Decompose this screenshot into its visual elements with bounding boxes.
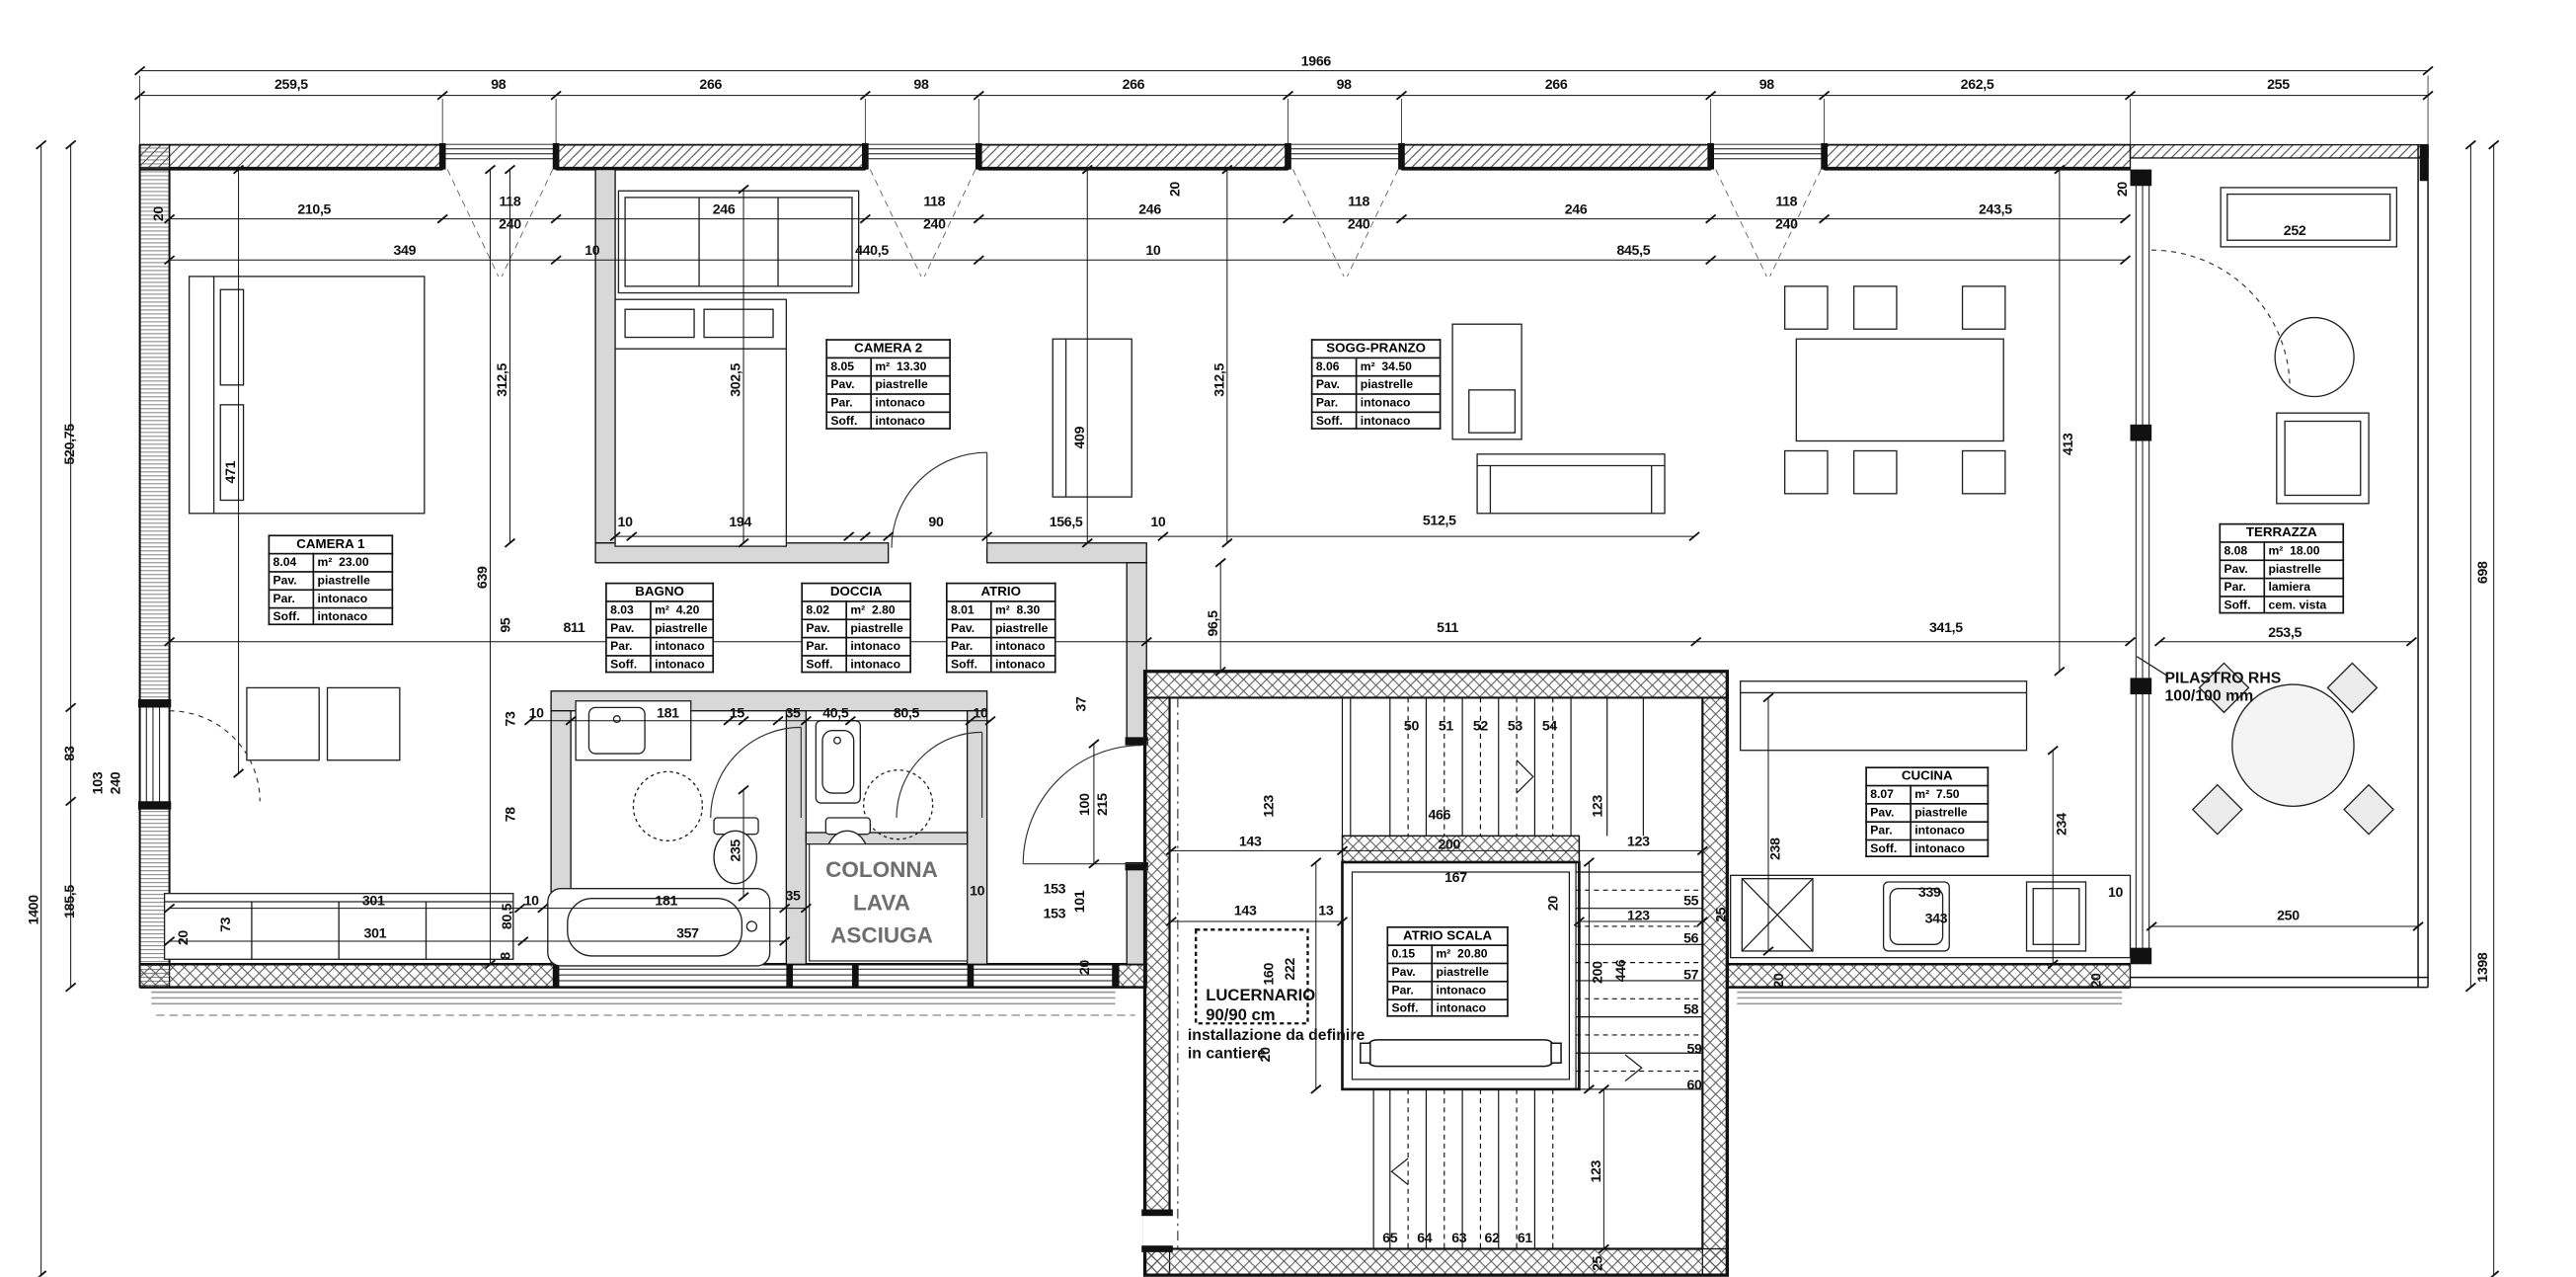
floor-plan: 1966259,598266982669826698262,525520210,…	[0, 0, 2576, 1277]
room-code: 8.03	[606, 601, 651, 619]
dim-label: 56	[1683, 929, 1698, 946]
dining-set	[1785, 286, 2005, 494]
dim-label: 10	[585, 242, 599, 259]
dim-label: 471	[222, 461, 239, 484]
room-area: m² 7.50	[1911, 786, 1988, 804]
room-name: BAGNO	[606, 584, 713, 601]
dim-label: 246	[1138, 200, 1161, 217]
note-line: in cantiere	[1188, 1045, 1365, 1063]
finish-value: intonaco	[313, 607, 392, 625]
finish-label: Par.	[1866, 822, 1911, 839]
dim-label: 1400	[25, 895, 41, 924]
dim-label: 54	[1542, 717, 1557, 734]
room-table-bagno: BAGNO8.03m² 4.20Pav.piastrellePar.intona…	[605, 583, 714, 674]
finish-label: Par.	[1387, 981, 1432, 998]
room-area: m² 20.80	[1432, 945, 1508, 963]
dim-label: 118	[1348, 193, 1369, 209]
room-name: TERRAZZA	[2220, 524, 2343, 542]
room-table-terrazza: TERRAZZA8.08m² 18.00Pav.piastrellePar.la…	[2219, 523, 2344, 614]
finish-value: piastrelle	[871, 375, 950, 393]
dim-label: 58	[1683, 1000, 1698, 1017]
finish-label: Soff.	[1866, 839, 1911, 857]
dim-label: 301	[364, 924, 387, 941]
finish-label: Soff.	[826, 412, 871, 430]
dim-label: 235	[727, 839, 743, 862]
finish-label: Pav.	[1866, 804, 1911, 822]
room-table-doccia: DOCCIA8.02m² 2.80Pav.piastrellePar.inton…	[801, 583, 911, 674]
dim-label: 185,5	[61, 885, 78, 918]
dim-label: 25	[1589, 1256, 1605, 1271]
finish-label: Par.	[947, 637, 991, 655]
finish-value: intonaco	[313, 590, 392, 607]
finish-label: Pav.	[2220, 560, 2264, 578]
dim-label: 698	[2474, 561, 2491, 584]
finish-value: piastrelle	[1357, 375, 1441, 393]
dim-label: 240	[1348, 215, 1370, 232]
dim-label: 259,5	[274, 76, 308, 93]
dim-label: 181	[657, 704, 679, 721]
dim-label: 255	[2267, 76, 2290, 93]
floor-plan-drawing	[0, 0, 2576, 1277]
dim-label: 62	[1485, 1230, 1500, 1246]
finish-label: Soff.	[269, 607, 313, 625]
dim-label: 10	[970, 882, 984, 899]
dim-label: 80,5	[894, 704, 919, 721]
note-colonna-lava-asciuga: COLONNALAVAASCIUGA	[825, 854, 938, 953]
dim-label: 52	[1473, 717, 1488, 734]
note-line: LAVA	[825, 887, 938, 919]
dim-label: 811	[564, 618, 585, 635]
finish-value: intonaco	[846, 655, 910, 673]
kitchen-island	[1741, 681, 2027, 751]
finish-label: Par.	[2220, 578, 2264, 596]
finish-value: intonaco	[1911, 822, 1988, 839]
dim-label: 78	[502, 807, 518, 822]
room-table-cucina: CUCINA8.07m² 7.50Pav.piastrellePar.inton…	[1865, 766, 1989, 857]
pouf	[247, 687, 319, 759]
room-area: m² 23.00	[313, 554, 392, 572]
dim-label: 302,5	[727, 363, 743, 397]
finish-label: Pav.	[1387, 963, 1432, 981]
finish-label: Par.	[269, 590, 313, 607]
dim-label: 63	[1451, 1230, 1466, 1246]
finish-label: Soff.	[2220, 596, 2264, 613]
room-name: CAMERA 2	[826, 340, 950, 358]
room-table-atrio: ATRIO8.01m² 8.30Pav.piastrellePar.intona…	[946, 583, 1056, 674]
note-line: installazione da definire	[1188, 1027, 1365, 1045]
room-table-camera-1: CAMERA 18.04m² 23.00Pav.piastrellePar.in…	[269, 534, 394, 625]
dim-label: 160	[1260, 963, 1277, 986]
dim-label: 210,5	[297, 200, 331, 217]
finish-label: Soff.	[1312, 412, 1357, 430]
dim-label: 20	[150, 206, 167, 221]
finish-value: intonaco	[991, 655, 1055, 673]
dim-label: 123	[1260, 795, 1277, 818]
finish-label: Soff.	[947, 655, 991, 673]
note-line: PILASTRO RHS	[2164, 670, 2281, 687]
dim-label: 123	[1588, 1160, 1604, 1183]
dim-label: 266	[1545, 76, 1568, 93]
finish-value: piastrelle	[1432, 963, 1508, 981]
dim-label: 520,75	[61, 424, 78, 464]
finish-value: intonaco	[1357, 412, 1441, 430]
dim-label: 10	[1150, 514, 1165, 530]
terrace-chair	[2344, 785, 2393, 835]
wardrobe-camera-2	[618, 191, 858, 292]
finish-label: Par.	[1312, 393, 1357, 411]
dim-label: 240	[107, 772, 123, 795]
room-code: 8.04	[269, 554, 313, 572]
dim-label: 10	[973, 704, 987, 721]
dim-label: 246	[713, 200, 736, 217]
dim-label: 15	[730, 704, 744, 721]
dim-label: 35	[785, 704, 800, 721]
dim-label: 10	[524, 892, 539, 909]
note-line: COLONNA	[825, 854, 938, 887]
dim-label: 60	[1686, 1077, 1701, 1093]
dim-label: 65	[1382, 1230, 1397, 1246]
room-area: m² 13.30	[871, 358, 950, 375]
room-code: 0.15	[1387, 945, 1432, 963]
dim-label: 215	[1094, 793, 1111, 816]
room-table-sogg-pranzo: SOGG-PRANZO8.06m² 34.50Pav.piastrellePar…	[1311, 339, 1442, 430]
room-code: 8.07	[1866, 786, 1911, 804]
dim-label: 341,5	[1929, 618, 1963, 635]
door-swings	[170, 170, 2291, 864]
dim-label: 343	[1925, 910, 1948, 926]
dim-label: 90	[928, 514, 943, 530]
dim-label: 409	[1071, 427, 1088, 449]
room-area: m² 8.30	[991, 601, 1055, 619]
room-area: m² 2.80	[846, 601, 910, 619]
dim-label: 98	[491, 76, 506, 93]
dim-label: 35	[785, 887, 800, 904]
finish-value: intonaco	[871, 393, 950, 411]
finish-label: Par.	[802, 637, 846, 655]
finish-value: intonaco	[1911, 839, 1988, 857]
dim-label: 639	[474, 566, 491, 589]
dim-label: 13	[1318, 902, 1333, 918]
finish-value: intonaco	[1432, 998, 1508, 1016]
room-table-camera-2: CAMERA 28.05m² 13.30Pav.piastrellePar.in…	[825, 339, 951, 430]
dim-label: 118	[500, 193, 521, 209]
dim-label: 413	[2060, 434, 2076, 456]
furniture	[165, 188, 2397, 966]
dim-label: 252	[2284, 222, 2306, 239]
finish-value: piastrelle	[1911, 804, 1988, 822]
dim-label: 511	[1437, 618, 1458, 635]
dim-label: 98	[1759, 76, 1774, 93]
note-lucernario-note: installazione da definirein cantiere	[1188, 1027, 1365, 1064]
note-line: 90/90 cm	[1206, 1007, 1315, 1027]
dim-label: 153	[1044, 880, 1066, 897]
dim-label: 20	[1544, 896, 1561, 911]
finish-value: lamiera	[2264, 578, 2343, 596]
dim-label: 40,5	[822, 704, 848, 721]
dim-label: 339	[1918, 884, 1941, 901]
dim-label: 20	[2114, 182, 2131, 197]
note-lucernario: LUCERNARIO90/90 cm	[1206, 988, 1315, 1027]
room-name: ATRIO	[947, 584, 1055, 601]
dim-label: 1966	[1301, 52, 1331, 69]
dim-label: 118	[1775, 193, 1797, 209]
room-code: 8.08	[2220, 542, 2264, 560]
room-area: m² 18.00	[2264, 542, 2343, 560]
dim-label: 10	[529, 704, 544, 721]
dim-label: 266	[1123, 76, 1145, 93]
dim-label: 80,5	[499, 904, 515, 929]
finish-value: piastrelle	[313, 572, 392, 590]
dim-label: 143	[1234, 902, 1257, 918]
dim-label: 312,5	[494, 363, 510, 397]
dim-label: 240	[499, 215, 521, 232]
dim-label: 357	[676, 924, 699, 941]
dim-label: 156,5	[1050, 514, 1083, 530]
dim-label: 98	[913, 76, 928, 93]
dim-label: 55	[1683, 892, 1698, 909]
dim-label: 512,5	[1423, 512, 1456, 528]
finish-label: Pav.	[826, 375, 871, 393]
note-pilastro-rhs: PILASTRO RHS100/100 mm	[2164, 670, 2281, 706]
finish-label: Pav.	[1312, 375, 1357, 393]
coffee-table	[1469, 390, 1516, 433]
room-name: SOGG-PRANZO	[1312, 340, 1441, 358]
dim-label: 100	[1076, 793, 1093, 816]
dim-label: 312,5	[1210, 363, 1227, 397]
room-table-atrio-scala: ATRIO SCALA0.15m² 20.80Pav.piastrellePar…	[1386, 926, 1508, 1017]
finish-value: intonaco	[871, 412, 950, 430]
dim-label: 101	[1071, 891, 1088, 914]
washbasin-doccia	[816, 721, 860, 803]
room-code: 8.06	[1312, 358, 1357, 375]
dim-label: 153	[1044, 905, 1066, 921]
dim-label: 61	[1518, 1230, 1532, 1246]
finish-label: Soff.	[606, 655, 651, 673]
finish-value: intonaco	[651, 655, 713, 673]
clearance-circle	[864, 770, 933, 839]
finish-value: intonaco	[1357, 393, 1441, 411]
dim-label: 262,5	[1961, 76, 1994, 93]
dim-label: 95	[497, 618, 513, 633]
dim-label: 1398	[2474, 953, 2491, 983]
dim-label: 181	[655, 892, 677, 909]
room-name: CAMERA 1	[269, 535, 392, 553]
dim-label: 59	[1686, 1040, 1701, 1057]
room-code: 8.02	[802, 601, 846, 619]
dim-label: 123	[1627, 833, 1650, 849]
finish-value: intonaco	[991, 637, 1055, 655]
finish-value: piastrelle	[846, 619, 910, 637]
dim-label: 103	[89, 772, 106, 795]
finish-label: Pav.	[947, 619, 991, 637]
dim-label: 238	[1766, 838, 1783, 860]
dim-label: 25	[1712, 908, 1729, 922]
note-line: LUCERNARIO	[1206, 988, 1315, 1007]
dim-label: 37	[1072, 697, 1089, 712]
dim-label: 10	[618, 514, 633, 530]
finish-value: intonaco	[651, 637, 713, 655]
finish-label: Pav.	[269, 572, 313, 590]
dim-label: 246	[1565, 200, 1588, 217]
dim-label: 73	[217, 918, 234, 932]
sill-bands	[151, 993, 2122, 1015]
dim-label: 64	[1417, 1230, 1432, 1246]
room-area: m² 34.50	[1357, 358, 1441, 375]
terrace-seat	[2277, 413, 2369, 504]
note-line: 100/100 mm	[2164, 687, 2281, 705]
bed-camera-2	[615, 299, 786, 546]
finish-value: intonaco	[1432, 981, 1508, 998]
terrace-small-table	[2275, 318, 2354, 397]
terrace-chair	[2193, 785, 2242, 835]
finish-label: Par.	[826, 393, 871, 411]
dim-label: 20	[1076, 960, 1093, 975]
dim-label: 10	[1145, 242, 1160, 259]
finish-label: Par.	[606, 637, 651, 655]
sofa	[1477, 454, 1665, 514]
dim-label: 50	[1404, 717, 1419, 734]
dim-label: 96,5	[1205, 610, 1221, 636]
dim-label: 51	[1439, 717, 1453, 734]
dim-label: 250	[2277, 907, 2300, 923]
dim-label: 194	[729, 514, 751, 530]
room-name: CUCINA	[1866, 767, 1988, 785]
dim-label: 240	[1775, 215, 1798, 232]
dim-label: 10	[2108, 884, 2123, 901]
dim-label: 20	[175, 930, 192, 945]
finish-value: cem. vista	[2264, 596, 2343, 613]
room-code: 8.01	[947, 601, 991, 619]
clearance-circle	[633, 771, 702, 840]
dim-label: 20	[2087, 973, 2104, 988]
room-area: m² 4.20	[651, 601, 713, 619]
dim-label: 167	[1444, 869, 1467, 886]
dim-label: 98	[1337, 76, 1352, 93]
dim-label: 243,5	[1979, 200, 2012, 217]
dim-label: 266	[699, 76, 722, 93]
dim-label: 222	[1282, 958, 1298, 981]
dim-label: 73	[502, 712, 518, 727]
dim-label: 301	[362, 892, 385, 909]
finish-value: piastrelle	[651, 619, 713, 637]
finish-label: Pav.	[606, 619, 651, 637]
dim-label: 440,5	[855, 242, 889, 259]
terrace-planter	[2221, 188, 2396, 247]
pouf	[328, 687, 400, 759]
dim-label: 118	[923, 193, 945, 209]
dim-label: 845,5	[1616, 242, 1650, 259]
dim-label: 20	[1166, 182, 1183, 197]
dim-label: 200	[1438, 836, 1460, 852]
finish-value: piastrelle	[991, 619, 1055, 637]
room-name: DOCCIA	[802, 584, 910, 601]
dim-label: 8	[497, 952, 513, 960]
finish-value: intonaco	[846, 637, 910, 655]
dim-label: 83	[61, 746, 78, 760]
dim-label: 466	[1428, 806, 1450, 823]
dim-label: 57	[1683, 966, 1698, 983]
finish-label: Soff.	[802, 655, 846, 673]
finish-label: Pav.	[802, 619, 846, 637]
dim-label: 234	[2053, 813, 2069, 836]
dim-label: 53	[1508, 717, 1522, 734]
dim-label: 123	[1589, 795, 1605, 818]
room-code: 8.05	[826, 358, 871, 375]
note-line: ASCIUGA	[825, 919, 938, 952]
desk-camera-2	[1053, 339, 1132, 497]
finish-value: piastrelle	[2264, 560, 2343, 578]
finish-label: Soff.	[1387, 998, 1432, 1016]
dim-label: 200	[1589, 961, 1605, 984]
dim-label: 446	[1612, 960, 1629, 983]
dim-label: 349	[394, 242, 417, 259]
dim-label: 123	[1627, 907, 1650, 923]
dim-label: 143	[1239, 833, 1262, 849]
dim-label: 253,5	[2268, 623, 2302, 640]
dim-label: 240	[923, 215, 946, 232]
dim-label: 20	[1770, 973, 1787, 988]
room-name: ATRIO SCALA	[1387, 927, 1508, 945]
